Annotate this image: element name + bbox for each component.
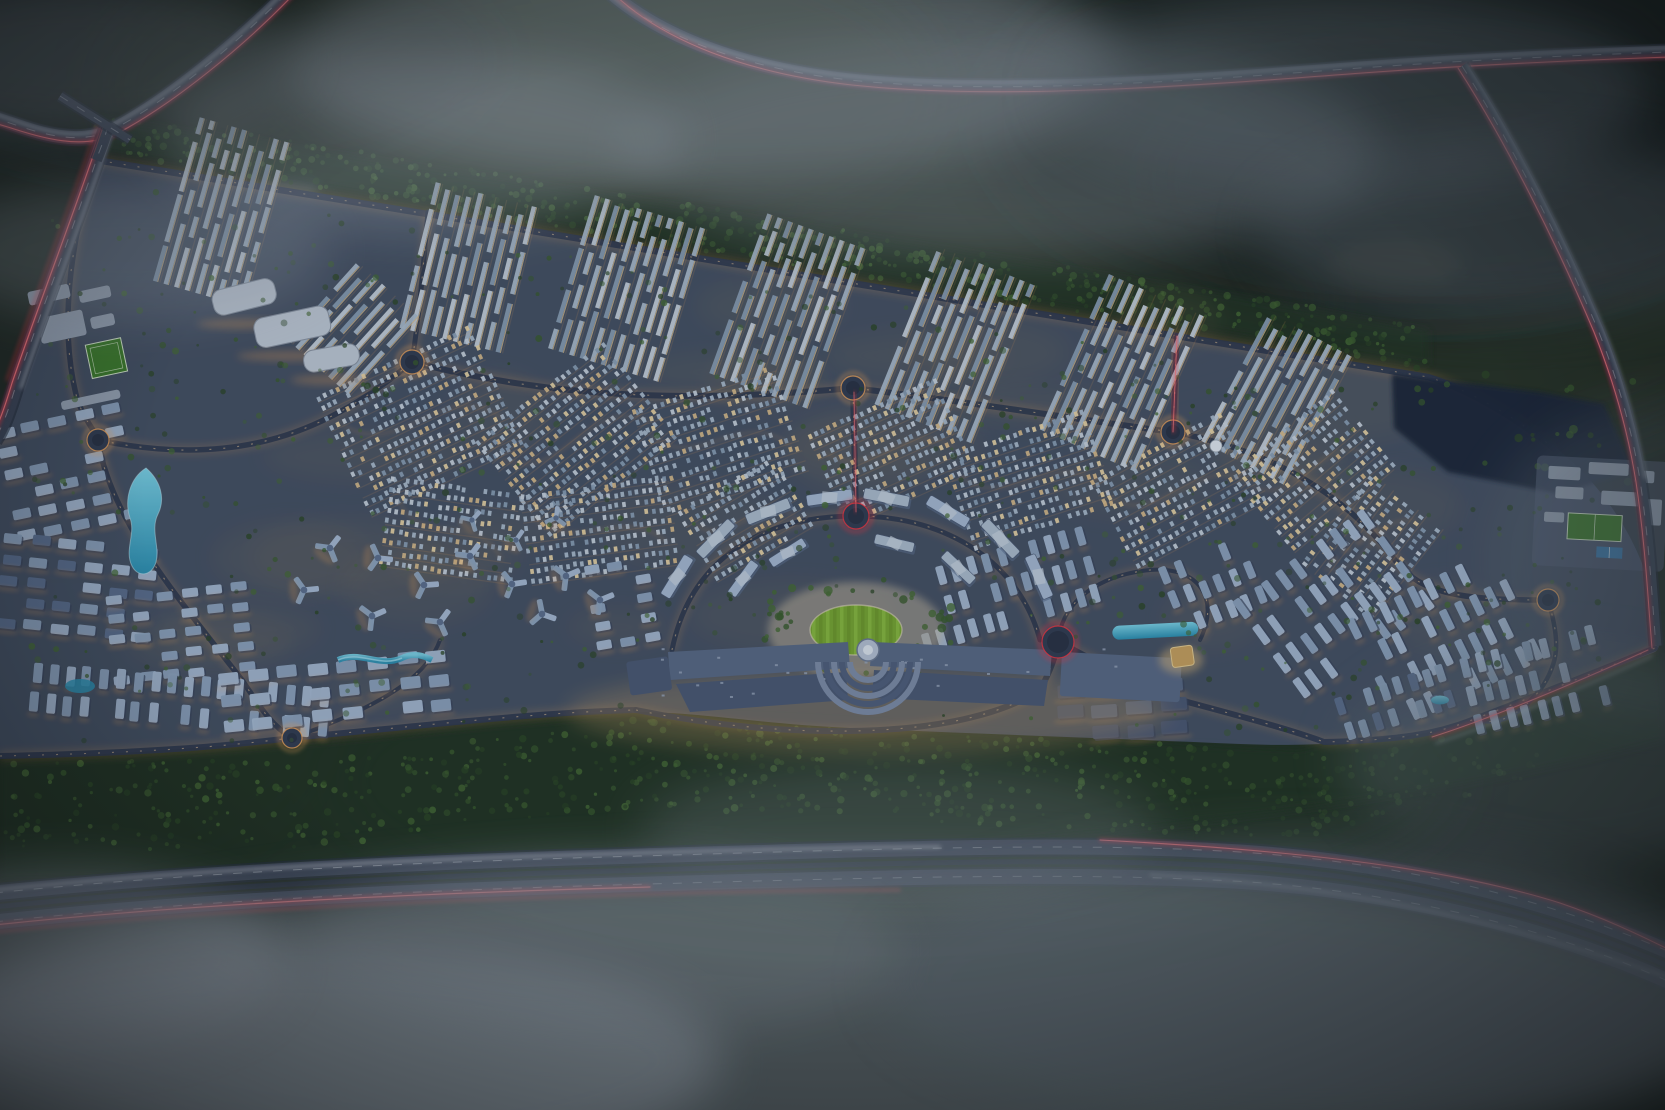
aerial-render: Dusk aerial render of a master-planned r… — [0, 0, 1665, 1110]
masterplan-aerial-scene: Dusk aerial render of a master-planned r… — [0, 0, 1665, 1110]
